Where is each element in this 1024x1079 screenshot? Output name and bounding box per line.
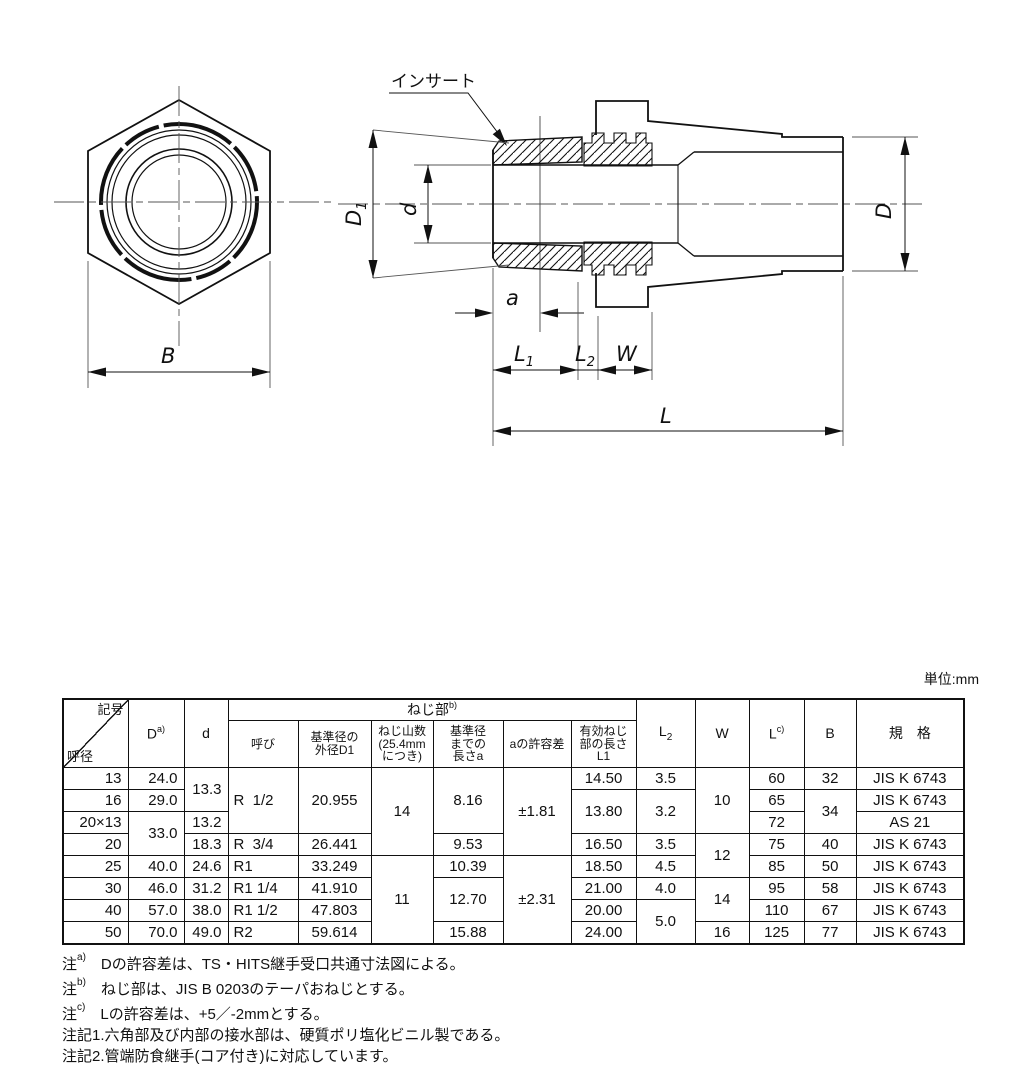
- table-cell: 14.50: [571, 768, 636, 790]
- table-cell: 31.2: [184, 878, 228, 900]
- table-cell: 29.0: [128, 790, 184, 812]
- table-cell: 3.5: [636, 768, 695, 790]
- note-line: 注記1.六角部及び内部の接水部は、硬質ポリ塩化ビニル製である。: [62, 1025, 509, 1046]
- insert-callout: インサート: [389, 72, 507, 146]
- table-cell: 14: [695, 878, 749, 922]
- header-standard: 規 格: [856, 699, 964, 768]
- table-cell: 57.0: [128, 900, 184, 922]
- table-cell: 30: [63, 878, 128, 900]
- dim-label-B: B: [161, 344, 175, 368]
- table-cell: 67: [804, 900, 856, 922]
- table-cell: 20.955: [298, 768, 371, 834]
- table-cell: 40: [804, 834, 856, 856]
- dim-label-L2: L2: [575, 342, 595, 370]
- note-prefix: 注: [62, 1006, 77, 1023]
- table-cell: JIS K 6743: [856, 900, 964, 922]
- table-cell: 46.0: [128, 878, 184, 900]
- table-cell: 14: [371, 768, 433, 856]
- note-superscript: b): [77, 977, 86, 988]
- table-cell: 34: [804, 790, 856, 834]
- dim-label-d: d: [397, 202, 421, 216]
- insert-label: インサート: [391, 72, 476, 92]
- note-line: 注記2.管端防食継手(コア付き)に対応しています。: [62, 1046, 509, 1067]
- table-cell: 26.441: [298, 834, 371, 856]
- dimension-table: 記号 呼径 Da) d ねじ部b) L2 W Lc) B 規 格 呼び 基準径の…: [62, 698, 965, 945]
- table-cell: ±1.81: [503, 768, 571, 856]
- table-cell: R 1/2: [228, 768, 298, 834]
- table-cell: 4.0: [636, 878, 695, 900]
- note-text: 管端防食継手(コア付き)に対応しています。: [105, 1048, 398, 1065]
- table-cell: 16: [695, 922, 749, 945]
- table-cell: 59.614: [298, 922, 371, 945]
- table-cell: 15.88: [433, 922, 503, 945]
- table-cell: 32: [804, 768, 856, 790]
- table-cell: JIS K 6743: [856, 768, 964, 790]
- table-cell: 85: [749, 856, 804, 878]
- note-line: 注b)ねじ部は、JIS B 0203のテーパおねじとする。: [62, 975, 509, 1000]
- table-cell: 20: [63, 834, 128, 856]
- header-L: Lc): [749, 699, 804, 768]
- notes-block: 注a)Dの許容差は、TS・HITS継手受口共通寸法図による。注b)ねじ部は、JI…: [62, 950, 509, 1067]
- note-superscript: c): [77, 1002, 85, 1013]
- header-D: Da): [128, 699, 184, 768]
- table-cell: R 3/4: [228, 834, 298, 856]
- table-cell: 13.3: [184, 768, 228, 812]
- table-row: 2540.024.6R133.2491110.39±2.3118.504.585…: [63, 856, 964, 878]
- dim-label-L: L: [660, 404, 672, 428]
- table-cell: 8.16: [433, 768, 503, 834]
- table-cell: 20×13: [63, 812, 128, 834]
- table-cell: 16: [63, 790, 128, 812]
- header-L2: L2: [636, 699, 695, 768]
- unit-label: 単位:mm: [924, 669, 979, 689]
- note-prefix: 注記2.: [62, 1048, 105, 1065]
- note-text: Dの許容差は、TS・HITS継手受口共通寸法図による。: [101, 956, 465, 973]
- table-cell: 11: [371, 856, 433, 945]
- table-cell: JIS K 6743: [856, 856, 964, 878]
- note-prefix: 注: [62, 981, 77, 998]
- table-cell: 20.00: [571, 900, 636, 922]
- table-cell: 3.5: [636, 834, 695, 856]
- header-W: W: [695, 699, 749, 768]
- table-cell: 13.80: [571, 790, 636, 834]
- table-cell: 70.0: [128, 922, 184, 945]
- note-line: 注c)Lの許容差は、+5／-2mmとする。: [62, 1000, 509, 1025]
- table-cell: 21.00: [571, 878, 636, 900]
- note-text: Lの許容差は、+5／-2mmとする。: [100, 1006, 328, 1023]
- table-cell: ±2.31: [503, 856, 571, 945]
- table-cell: JIS K 6743: [856, 834, 964, 856]
- table-cell: R1 1/4: [228, 878, 298, 900]
- table-cell: 18.3: [184, 834, 228, 856]
- table-cell: 49.0: [184, 922, 228, 945]
- table-cell: 38.0: [184, 900, 228, 922]
- table-cell: JIS K 6743: [856, 790, 964, 812]
- table-cell: 110: [749, 900, 804, 922]
- table-cell: 4.5: [636, 856, 695, 878]
- table-cell: 58: [804, 878, 856, 900]
- header-thread-pitch: ねじ山数 (25.4mm につき): [371, 721, 433, 768]
- table-cell: 72: [749, 812, 804, 834]
- table-cell: 10: [695, 768, 749, 834]
- table-cell: 33.249: [298, 856, 371, 878]
- table-row: 1324.013.3R 1/220.955148.16±1.8114.503.5…: [63, 768, 964, 790]
- table-cell: R1 1/2: [228, 900, 298, 922]
- table-cell: 65: [749, 790, 804, 812]
- spec-sheet-page: B: [0, 0, 1024, 1079]
- front-view: B: [54, 86, 332, 388]
- dim-label-L1: L1: [514, 342, 534, 370]
- dimension-L: L: [493, 276, 843, 446]
- table-cell: 77: [804, 922, 856, 945]
- table-cell: 5.0: [636, 900, 695, 945]
- header-thread-group: ねじ部b): [228, 699, 636, 721]
- table-cell: 40.0: [128, 856, 184, 878]
- table-cell: 125: [749, 922, 804, 945]
- header-B: B: [804, 699, 856, 768]
- table-cell: 24.6: [184, 856, 228, 878]
- table-cell: 3.2: [636, 790, 695, 834]
- table-cell: 75: [749, 834, 804, 856]
- header-thread-name: 呼び: [228, 721, 298, 768]
- note-prefix: 注: [62, 956, 77, 973]
- dim-label-W: W: [616, 342, 638, 366]
- table-cell: 16.50: [571, 834, 636, 856]
- table-cell: 12.70: [433, 878, 503, 922]
- header-d: d: [184, 699, 228, 768]
- table-cell: 9.53: [433, 834, 503, 856]
- header-thread-length-a: 基準径 までの 長さa: [433, 721, 503, 768]
- corner-header-cell: 記号 呼径: [63, 699, 128, 768]
- table-cell: JIS K 6743: [856, 922, 964, 945]
- note-prefix: 注記1.: [62, 1027, 105, 1044]
- table-cell: JIS K 6743: [856, 878, 964, 900]
- note-text: 六角部及び内部の接水部は、硬質ポリ塩化ビニル製である。: [105, 1027, 510, 1044]
- corner-caliber-label: 呼径: [67, 750, 93, 764]
- table-cell: 50: [63, 922, 128, 945]
- table-cell: 10.39: [433, 856, 503, 878]
- note-line: 注a)Dの許容差は、TS・HITS継手受口共通寸法図による。: [62, 950, 509, 975]
- table-cell: 18.50: [571, 856, 636, 878]
- table-cell: 95: [749, 878, 804, 900]
- note-superscript: a): [77, 952, 86, 963]
- arrowhead-left-icon: [88, 368, 106, 377]
- table-cell: 47.803: [298, 900, 371, 922]
- dim-label-a: a: [506, 286, 519, 310]
- table-cell: 41.910: [298, 878, 371, 900]
- table-cell: R2: [228, 922, 298, 945]
- header-effective-length: 有効ねじ 部の長さ L1: [571, 721, 636, 768]
- table-cell: 33.0: [128, 812, 184, 856]
- table-cell: AS 21: [856, 812, 964, 834]
- table-cell: 13.2: [184, 812, 228, 834]
- table-cell: R1: [228, 856, 298, 878]
- table-cell: 24.0: [128, 768, 184, 790]
- header-thread-od: 基準径の 外径D1: [298, 721, 371, 768]
- arrowhead-right-icon: [252, 368, 270, 377]
- dimension-table-wrap: 記号 呼径 Da) d ねじ部b) L2 W Lc) B 規 格 呼び 基準径の…: [62, 698, 965, 945]
- table-cell: 60: [749, 768, 804, 790]
- corner-symbol-label: 記号: [97, 703, 123, 717]
- table-cell: 50: [804, 856, 856, 878]
- technical-drawing: B: [0, 0, 1024, 470]
- dim-label-D: D: [872, 203, 896, 219]
- header-a-tolerance: aの許容差: [503, 721, 571, 768]
- note-text: ねじ部は、JIS B 0203のテーパおねじとする。: [101, 981, 414, 998]
- table-cell: 12: [695, 834, 749, 878]
- table-cell: 25: [63, 856, 128, 878]
- table-cell: 13: [63, 768, 128, 790]
- dim-label-D1: D1: [342, 202, 370, 226]
- side-view: インサート D1 d: [338, 72, 922, 446]
- table-cell: 24.00: [571, 922, 636, 945]
- table-cell: 40: [63, 900, 128, 922]
